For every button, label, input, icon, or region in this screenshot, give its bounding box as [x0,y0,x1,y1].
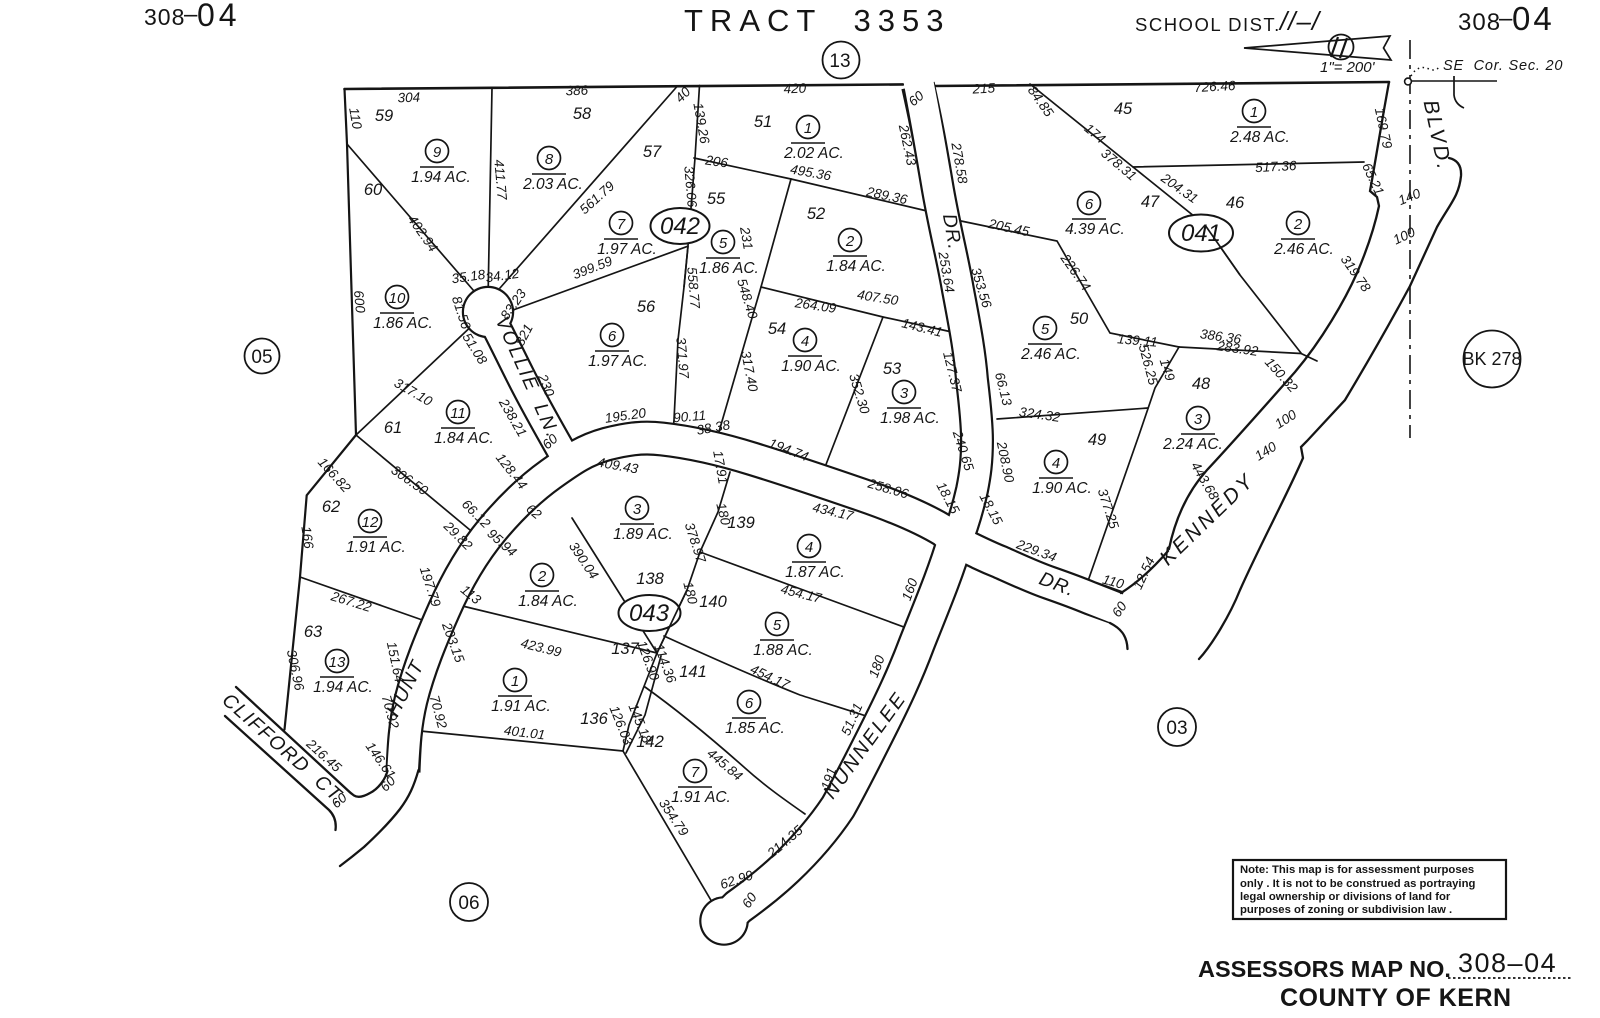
svg-text:2: 2 [845,233,855,250]
svg-text:63: 63 [304,623,323,641]
svg-text:54: 54 [768,320,786,338]
svg-text:57: 57 [643,143,662,161]
svg-text:TRACT 3353: TRACT 3353 [684,3,951,38]
svg-text:04: 04 [197,0,241,33]
svg-text:8: 8 [545,151,554,168]
svg-text:5: 5 [773,617,782,634]
svg-text:2.48 AC.: 2.48 AC. [1229,129,1290,146]
svg-text:308–04: 308–04 [1458,948,1557,978]
svg-text:1.86 AC.: 1.86 AC. [699,260,759,277]
svg-text:2.03 AC.: 2.03 AC. [522,176,583,193]
svg-text:58: 58 [573,105,592,123]
svg-text:13: 13 [329,654,346,671]
svg-text:2.24 AC.: 2.24 AC. [1162,436,1223,453]
svg-text:1.90 AC.: 1.90 AC. [1032,480,1092,497]
svg-text:61: 61 [384,419,402,437]
svg-text:1.84 AC.: 1.84 AC. [518,593,578,610]
svg-text:517.36: 517.36 [1255,158,1298,175]
svg-text:3: 3 [633,501,642,518]
svg-text:5: 5 [719,235,728,252]
svg-text:1.91 AC.: 1.91 AC. [491,698,551,715]
svg-text:48: 48 [1192,375,1211,393]
svg-text:138: 138 [636,570,664,588]
svg-text:1: 1 [1250,104,1258,121]
svg-text:1"= 200': 1"= 200' [1320,59,1376,76]
svg-text:49: 49 [1088,431,1106,449]
svg-text:4: 4 [1052,455,1060,472]
svg-text:56: 56 [637,298,656,316]
svg-text:3: 3 [900,385,909,402]
svg-text:1.91 AC.: 1.91 AC. [346,539,406,556]
svg-text:only . It is not to be constru: only . It is not to be construed as port… [1240,878,1475,890]
svg-text:1.94 AC.: 1.94 AC. [313,679,373,696]
svg-text:043: 043 [629,600,670,627]
svg-text:215: 215 [971,80,996,96]
svg-text:1.97 AC.: 1.97 AC. [588,353,648,370]
svg-text:1.94 AC.: 1.94 AC. [411,169,471,186]
svg-text:140: 140 [699,593,727,611]
svg-text:04: 04 [1512,0,1555,37]
svg-text:726.46: 726.46 [1194,78,1237,95]
svg-text:141: 141 [679,663,707,681]
svg-text:4.39 AC.: 4.39 AC. [1065,221,1125,238]
svg-text:–: – [184,1,198,28]
svg-text:BK 278: BK 278 [1462,349,1521,369]
svg-text:1.84 AC.: 1.84 AC. [434,430,494,447]
svg-text:ASSESSORS MAP NO.: ASSESSORS MAP NO. [1198,956,1451,982]
svg-text:2.02 AC.: 2.02 AC. [783,145,844,162]
svg-text:9: 9 [433,144,442,161]
svg-text:13: 13 [829,51,850,72]
svg-text:60: 60 [364,181,383,199]
svg-text:308: 308 [144,4,185,30]
svg-text:4: 4 [805,539,813,556]
svg-text:3: 3 [1194,411,1203,428]
svg-text:55: 55 [707,190,726,208]
svg-text:05: 05 [251,347,272,368]
svg-text:COUNTY OF KERN: COUNTY OF KERN [1280,984,1512,1012]
svg-text:1.84 AC.: 1.84 AC. [826,258,886,275]
svg-text:SCHOOL DIST.: SCHOOL DIST. [1135,14,1281,35]
svg-text:041: 041 [1181,220,1221,247]
svg-text:1.88 AC.: 1.88 AC. [753,642,813,659]
svg-text:308: 308 [1458,9,1501,36]
svg-text:7: 7 [691,764,700,781]
svg-text:2: 2 [537,568,547,585]
svg-text:12: 12 [362,514,379,531]
svg-text:06: 06 [458,893,479,914]
svg-text:420: 420 [783,81,807,97]
svg-text:6: 6 [745,695,754,712]
svg-text:6: 6 [1085,196,1094,213]
svg-text:11: 11 [450,405,466,422]
svg-text:2.46 AC.: 2.46 AC. [1273,241,1334,258]
svg-text:1.91 AC.: 1.91 AC. [671,789,731,806]
svg-text:47: 47 [1141,193,1160,211]
svg-text:1.86 AC.: 1.86 AC. [373,315,433,332]
svg-text:4: 4 [801,333,809,350]
svg-text:59: 59 [375,107,393,125]
svg-text:304: 304 [397,90,420,106]
svg-text:62: 62 [322,498,340,516]
svg-text:Note: This map is for assessme: Note: This map is for assessment purpose… [1240,864,1474,876]
svg-text:166: 166 [298,525,316,550]
svg-text:042: 042 [660,213,700,240]
svg-text:1.85 AC.: 1.85 AC. [725,720,785,737]
svg-text:386: 386 [565,83,589,99]
svg-text:53: 53 [883,360,902,378]
svg-text:46: 46 [1226,194,1245,212]
svg-text:7: 7 [617,216,626,233]
svg-text:136: 136 [580,710,608,728]
svg-text:10: 10 [389,290,406,307]
svg-text:50: 50 [1070,310,1089,328]
svg-text:1: 1 [511,673,519,690]
svg-text:2.46 AC.: 2.46 AC. [1020,346,1081,363]
svg-text:03: 03 [1166,718,1187,739]
svg-text:1.98 AC.: 1.98 AC. [880,410,940,427]
svg-text:51: 51 [754,113,772,131]
svg-text://–/: //–/ [1278,6,1322,36]
svg-text:SE Cor. Sec. 20: SE Cor. Sec. 20 [1443,58,1563,74]
svg-text:600: 600 [351,290,368,314]
svg-text:2: 2 [1293,216,1303,233]
svg-text:1: 1 [804,120,812,137]
svg-text:1.90 AC.: 1.90 AC. [781,358,841,375]
svg-text:legal ownership or divisions o: legal ownership or divisions of land for [1240,891,1451,903]
svg-text:6: 6 [608,328,617,345]
svg-text:5: 5 [1041,321,1050,338]
svg-text:52: 52 [807,205,825,223]
svg-text:purposes of zoning or subdivis: purposes of zoning or subdivision law . [1240,904,1452,916]
svg-text:1.87 AC.: 1.87 AC. [785,564,845,581]
svg-text:1.89 AC.: 1.89 AC. [613,526,673,543]
svg-text:–: – [1499,5,1513,32]
svg-text:45: 45 [1114,100,1133,118]
